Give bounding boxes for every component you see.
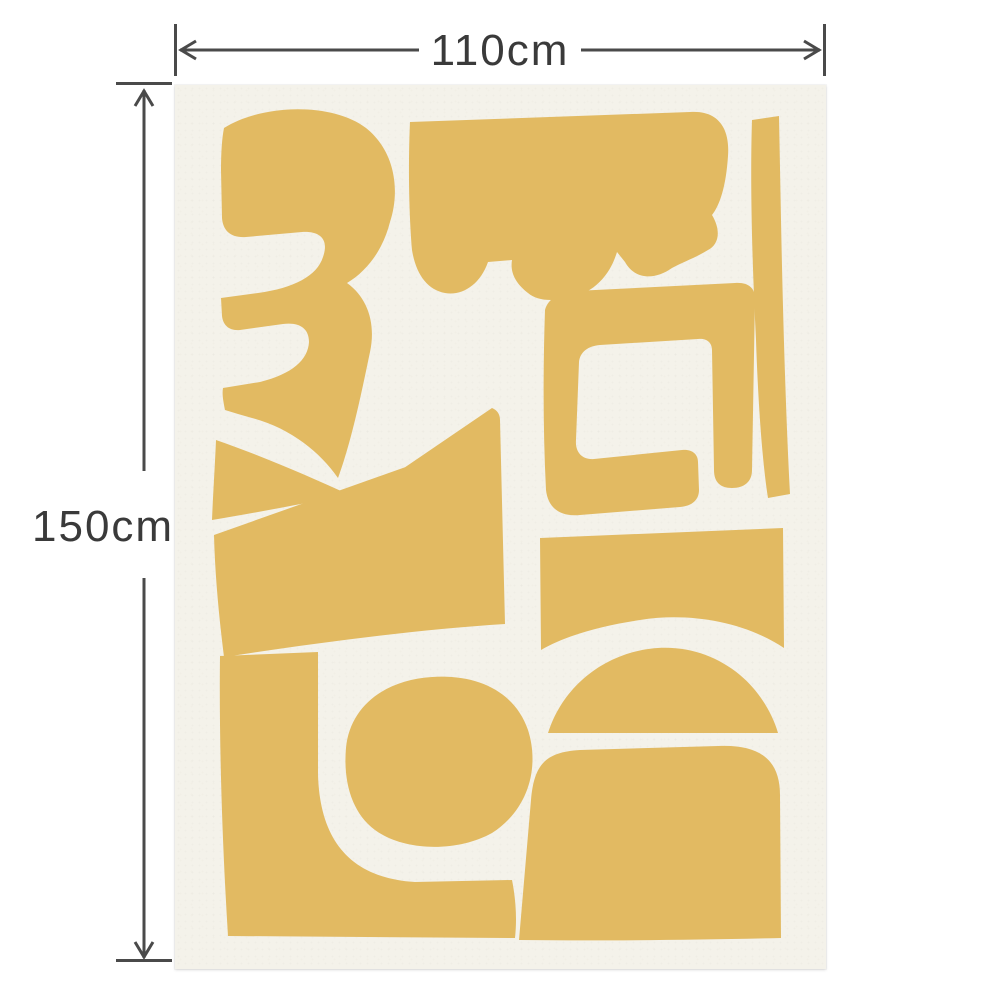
arch-cutout bbox=[519, 746, 781, 941]
poster bbox=[175, 85, 826, 969]
product-dimension-diagram: 110cm 150cm bbox=[0, 0, 1000, 1000]
fin-arch-cutout bbox=[548, 648, 778, 733]
poster-artwork bbox=[175, 85, 826, 969]
trapezoid-bowtie-cutout bbox=[214, 408, 505, 657]
height-cap-top bbox=[116, 82, 172, 85]
width-label: 110cm bbox=[400, 27, 600, 75]
right-bar-cutout bbox=[751, 116, 790, 498]
cloud-scallop-cutout bbox=[409, 112, 728, 300]
height-label: 150cm bbox=[32, 503, 174, 551]
reversed-three-cutout bbox=[221, 109, 395, 478]
bracket-cutout bbox=[544, 283, 755, 515]
panel-cutout bbox=[540, 528, 784, 650]
pebble-cutout bbox=[345, 677, 532, 847]
